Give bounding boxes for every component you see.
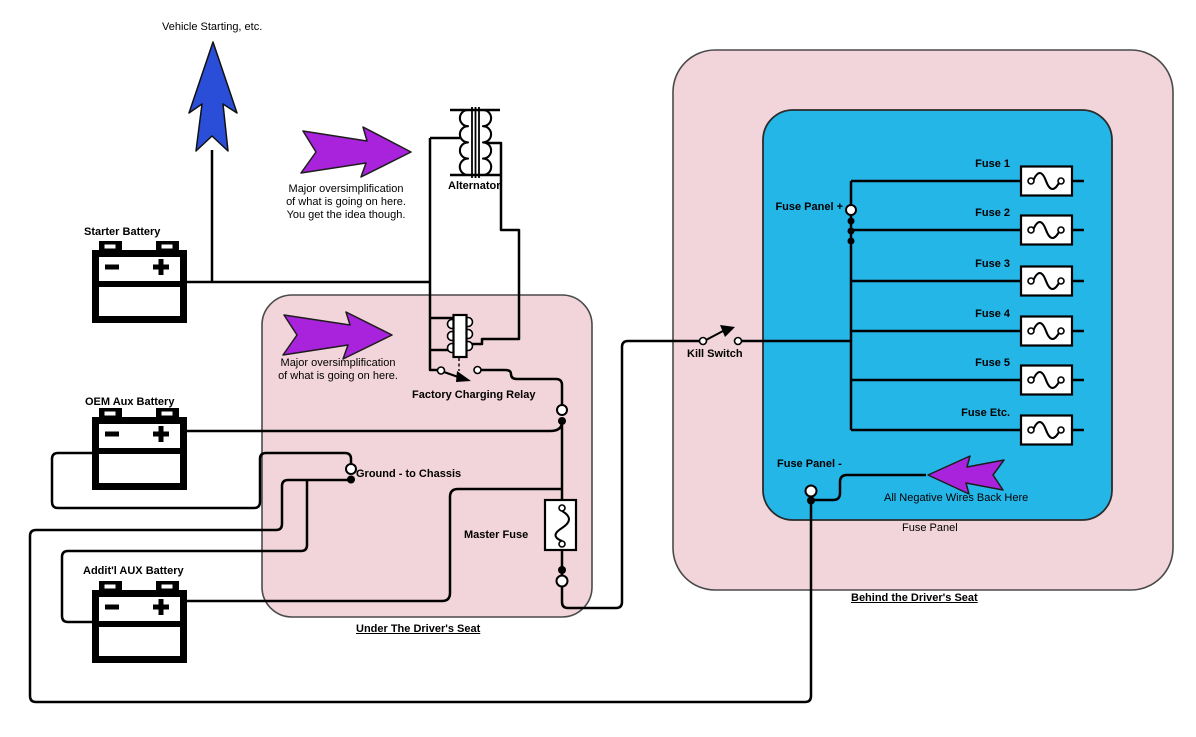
relay-output-terminal — [557, 405, 567, 415]
fuse-1-label: Fuse 1 — [940, 158, 1010, 171]
starter-battery-icon — [96, 241, 184, 320]
note-box: Major oversimplification of what is goin… — [266, 357, 410, 383]
factory-relay-label: Factory Charging Relay — [412, 389, 535, 402]
note-top: Major oversimplification of what is goin… — [268, 183, 424, 222]
starter-battery-label: Starter Battery — [84, 226, 160, 239]
master-fuse-output-terminal — [557, 576, 568, 587]
fuse-panel-plus-terminal — [846, 205, 856, 215]
all-negative-label: All Negative Wires Back Here — [884, 492, 1028, 505]
vehicle-starting-label: Vehicle Starting, etc. — [162, 21, 262, 34]
oversimplification-arrow-top-icon — [301, 127, 411, 177]
fuse-etc-label: Fuse Etc. — [930, 407, 1010, 420]
wiring-diagram: Vehicle Starting, etc. Major oversimplif… — [0, 0, 1196, 737]
fuse-5-label: Fuse 5 — [940, 357, 1010, 370]
relay-contact-right — [474, 367, 481, 374]
battery-junction-dot — [558, 417, 566, 425]
kill-switch-label: Kill Switch — [687, 348, 743, 361]
oem-battery-icon — [96, 408, 184, 487]
behind-seat-label: Behind the Driver's Seat — [851, 592, 978, 605]
oem-battery-label: OEM Aux Battery — [85, 396, 174, 409]
diagram-canvas — [0, 0, 1196, 737]
vehicle-starting-arrow-icon — [189, 42, 237, 151]
fuse-panel-plus-label: Fuse Panel + — [769, 201, 843, 214]
additl-battery-label: Addit'l AUX Battery — [83, 565, 184, 578]
fuse-panel-minus-label: Fuse Panel - — [777, 458, 842, 471]
master-fuse-icon — [545, 500, 576, 550]
fuse-panel-caption: Fuse Panel — [902, 522, 958, 535]
fuse-3-label: Fuse 3 — [940, 258, 1010, 271]
under-seat-label: Under The Driver's Seat — [356, 623, 480, 636]
fuse-panel-minus-terminal — [806, 486, 817, 497]
ground-label: Ground - to Chassis — [356, 468, 461, 481]
master-fuse-label: Master Fuse — [464, 529, 528, 542]
ground-terminal — [346, 464, 356, 474]
additl-battery-icon — [96, 581, 184, 660]
fuse-2-label: Fuse 2 — [940, 207, 1010, 220]
relay-contact-left — [438, 367, 445, 374]
fuse-4-label: Fuse 4 — [940, 308, 1010, 321]
alternator-label: Alternator — [448, 180, 501, 193]
